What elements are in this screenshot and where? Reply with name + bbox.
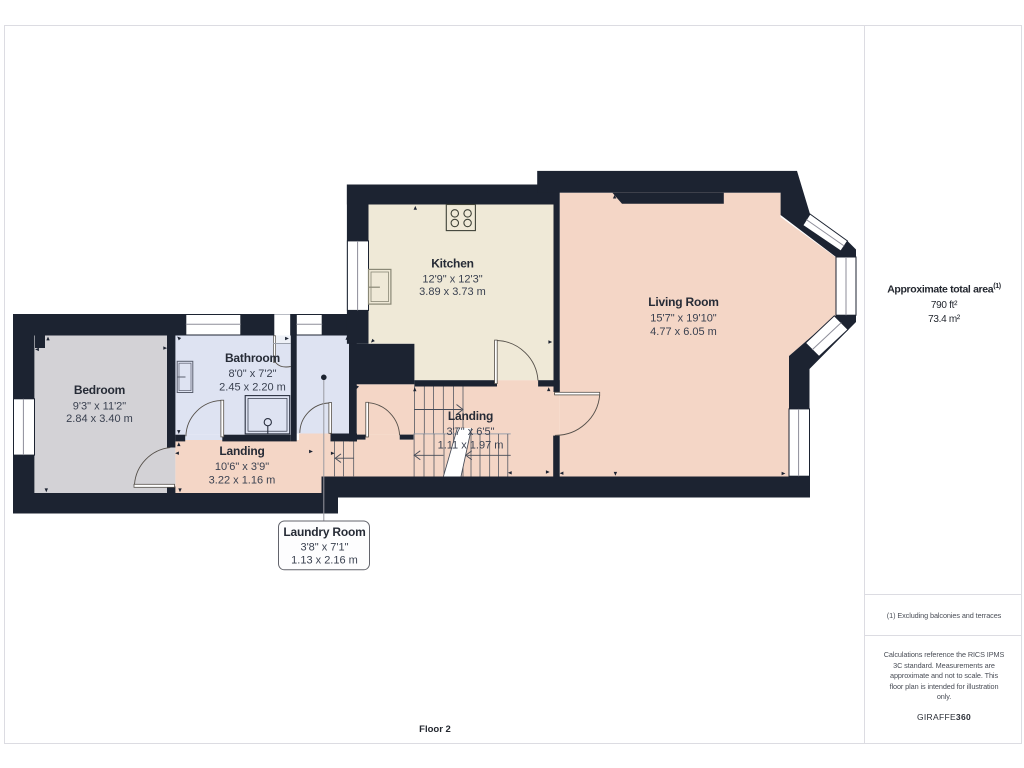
svg-text:8'0" x 7'2": 8'0" x 7'2" — [228, 368, 276, 380]
svg-text:2.84 x 3.40 m: 2.84 x 3.40 m — [66, 413, 133, 425]
svg-text:2.45 x 2.20 m: 2.45 x 2.20 m — [219, 382, 286, 394]
svg-text:Laundry Room: Laundry Room — [283, 525, 365, 539]
svg-text:9'3" x 11'2": 9'3" x 11'2" — [73, 400, 126, 412]
svg-text:Living Room: Living Room — [648, 295, 718, 309]
svg-text:3.22 x 1.16 m: 3.22 x 1.16 m — [209, 475, 276, 487]
svg-text:3'8" x 7'1": 3'8" x 7'1" — [300, 542, 348, 554]
svg-text:1.11 x 1.97 m: 1.11 x 1.97 m — [438, 440, 504, 452]
svg-text:12'9" x 12'3": 12'9" x 12'3" — [422, 273, 482, 285]
svg-text:Landing: Landing — [219, 444, 264, 458]
svg-text:3.89 x 3.73 m: 3.89 x 3.73 m — [419, 286, 486, 298]
svg-text:Landing: Landing — [448, 409, 493, 423]
svg-text:Bedroom: Bedroom — [74, 383, 125, 397]
svg-text:1.13 x 2.16 m: 1.13 x 2.16 m — [291, 555, 358, 567]
svg-text:Bathroom: Bathroom — [225, 351, 280, 365]
svg-text:3'7" x 6'5": 3'7" x 6'5" — [446, 426, 494, 438]
svg-text:4.77 x 6.05 m: 4.77 x 6.05 m — [650, 326, 717, 338]
svg-text:10'6" x 3'9": 10'6" x 3'9" — [215, 461, 269, 473]
svg-text:15'7" x 19'10": 15'7" x 19'10" — [650, 312, 717, 324]
svg-text:Kitchen: Kitchen — [431, 257, 474, 271]
